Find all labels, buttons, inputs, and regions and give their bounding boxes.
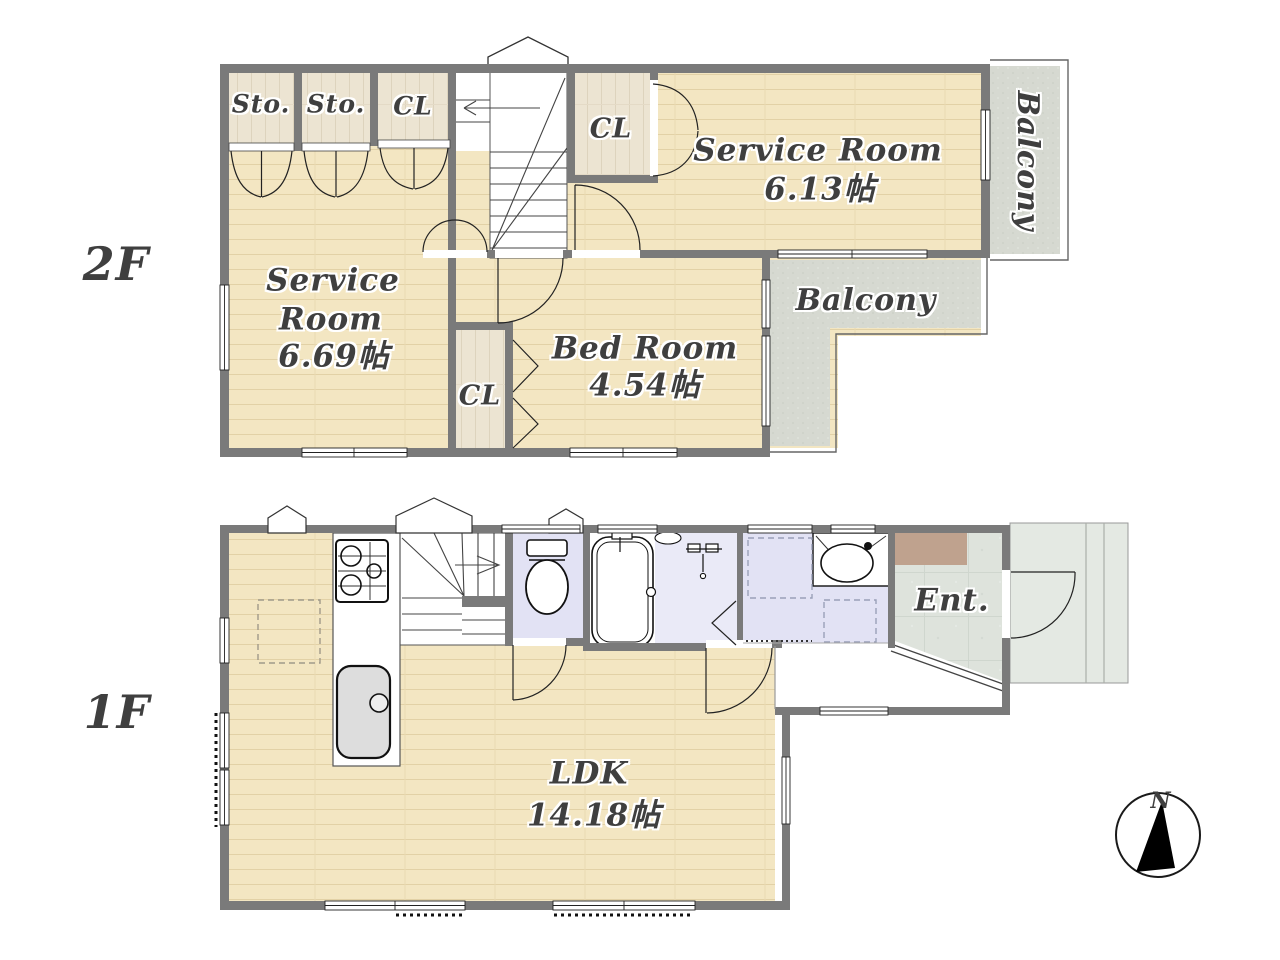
service-room-b-line1: Service: [266, 266, 400, 297]
porch: [1010, 523, 1128, 683]
2f-balcony-cut: [838, 336, 986, 457]
balcony-l-label: Balcony: [796, 286, 937, 316]
floor-label-2f: 2F: [83, 241, 150, 287]
floor-1f-plan: [216, 498, 1128, 915]
service-room-a-size: 6.13帖: [764, 175, 876, 206]
bed-room-name: Bed Room: [552, 334, 738, 365]
1f-stair-wall-stub: [462, 596, 508, 607]
ldk-size: 14.18帖: [527, 801, 661, 832]
shoe-cabinet: [895, 533, 967, 565]
closet-mid-label: CL: [459, 383, 501, 410]
kitchen-sink: [337, 666, 390, 758]
1f-stair: [400, 533, 508, 645]
floor-plan-page: 2F Sto. Sto. CL CL Service Room 6.13帖 Ba…: [0, 0, 1280, 960]
bathtub: [592, 531, 656, 647]
service-room-b-size: 6.69帖: [278, 342, 390, 373]
storage2-label: Sto.: [307, 92, 366, 117]
service-room-b-line2: Room: [279, 305, 383, 336]
2f-stair-landing: [456, 73, 490, 151]
ldk-name: LDK: [550, 759, 629, 790]
washbasin: [813, 533, 889, 586]
storage1-label: Sto.: [232, 92, 291, 117]
toilet-fixture: [526, 540, 568, 614]
closet-top-label: CL: [393, 94, 432, 119]
service-room-a-name: Service Room: [693, 136, 943, 167]
closet-right-label: CL: [590, 116, 632, 143]
balcony-right-label: Balcony: [1012, 91, 1042, 232]
entrance-label: Ent.: [914, 586, 989, 617]
bed-room-size: 4.54帖: [589, 371, 701, 402]
compass-north-label: N: [1150, 790, 1171, 812]
floor-label-1f: 1F: [84, 689, 151, 735]
stove: [336, 540, 388, 602]
